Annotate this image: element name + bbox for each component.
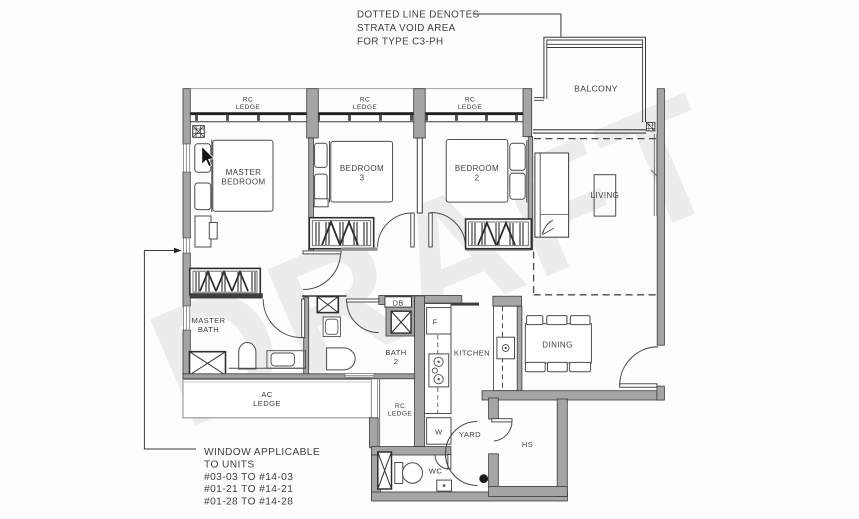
svg-text:TO UNITS: TO UNITS: [204, 460, 255, 471]
svg-text:2: 2: [475, 174, 480, 183]
svg-text:BEDROOM: BEDROOM: [455, 164, 499, 173]
svg-text:BALCONY: BALCONY: [574, 84, 618, 94]
svg-text:DOTTED LINE DENOTES: DOTTED LINE DENOTES: [357, 10, 480, 21]
svg-text:RC: RC: [243, 97, 253, 104]
svg-text:LEDGE: LEDGE: [353, 104, 378, 111]
svg-text:RC: RC: [395, 403, 405, 410]
svg-text:W: W: [435, 428, 443, 437]
svg-text:KITCHEN: KITCHEN: [454, 349, 490, 358]
svg-text:LEDGE: LEDGE: [458, 104, 483, 111]
svg-text:YARD: YARD: [459, 430, 481, 439]
svg-text:MASTER: MASTER: [226, 168, 262, 177]
svg-text:MASTER: MASTER: [191, 316, 225, 325]
svg-text:BEDROOM: BEDROOM: [221, 178, 265, 187]
svg-text:AC: AC: [261, 390, 272, 399]
svg-text:WINDOW APPLICABLE: WINDOW APPLICABLE: [204, 447, 320, 458]
svg-text:#01-21 TO #14-21: #01-21 TO #14-21: [204, 484, 293, 495]
svg-text:LEDGE: LEDGE: [236, 104, 261, 111]
svg-text:#01-28 TO #14-28: #01-28 TO #14-28: [204, 497, 293, 508]
svg-text:DINING: DINING: [542, 341, 572, 350]
svg-text:2: 2: [394, 357, 399, 366]
svg-text:BEDROOM: BEDROOM: [340, 164, 384, 173]
svg-text:DB: DB: [393, 298, 404, 307]
svg-text:RC: RC: [465, 97, 475, 104]
svg-text:BATH: BATH: [385, 348, 406, 357]
svg-text:WC: WC: [429, 467, 443, 476]
svg-text:3: 3: [360, 174, 365, 183]
svg-text:RC: RC: [360, 97, 370, 104]
svg-text:F: F: [432, 318, 437, 327]
svg-text:#03-03 TO #14-03: #03-03 TO #14-03: [204, 472, 293, 483]
svg-text:LEDGE: LEDGE: [253, 399, 281, 408]
svg-text:BATH: BATH: [198, 325, 219, 334]
svg-text:STRATA VOID AREA: STRATA VOID AREA: [357, 23, 456, 34]
svg-text:FOR TYPE C3-PH: FOR TYPE C3-PH: [357, 37, 444, 48]
svg-text:LEDGE: LEDGE: [388, 411, 413, 418]
svg-text:LIVING: LIVING: [591, 191, 620, 200]
svg-text:HS: HS: [522, 440, 533, 449]
